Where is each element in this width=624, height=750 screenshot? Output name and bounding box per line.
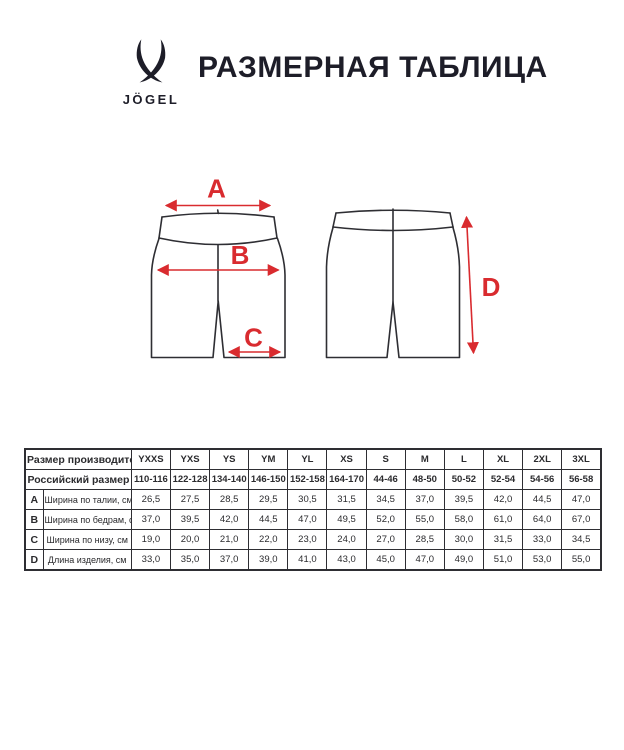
measure-label-c: C bbox=[244, 323, 263, 353]
measurement-value: 31,5 bbox=[483, 530, 522, 550]
measure-arrow-d bbox=[467, 217, 474, 353]
measurement-value: 31,5 bbox=[327, 490, 366, 510]
measurement-value: 20,0 bbox=[170, 530, 209, 550]
measurement-value: 33,0 bbox=[523, 530, 562, 550]
measurement-value: 55,0 bbox=[405, 510, 444, 530]
size-column-header: S bbox=[366, 449, 405, 470]
page-title: РАЗМЕРНАЯ ТАБЛИЦА bbox=[198, 52, 548, 84]
measure-label-d: D bbox=[482, 272, 501, 302]
size-column-header: 2XL bbox=[523, 449, 562, 470]
measurement-value: 24,0 bbox=[327, 530, 366, 550]
measurement-value: 37,0 bbox=[210, 550, 249, 571]
measurement-value: 58,0 bbox=[444, 510, 483, 530]
measurement-value: 34,5 bbox=[562, 530, 601, 550]
measurement-value: 23,0 bbox=[288, 530, 327, 550]
measurement-value: 34,5 bbox=[366, 490, 405, 510]
size-chart-page: JÖGEL РАЗМЕРНАЯ ТАБЛИЦА bbox=[0, 0, 624, 750]
russian-size-value: 164-170 bbox=[327, 470, 366, 490]
measurement-value: 30,0 bbox=[444, 530, 483, 550]
shorts-back-view bbox=[327, 209, 460, 358]
shorts-measurement-diagram: A B C D bbox=[0, 165, 624, 385]
measurement-letter: C bbox=[25, 530, 43, 550]
measurement-value: 49,0 bbox=[444, 550, 483, 571]
size-column-header: YS bbox=[210, 449, 249, 470]
size-column-header: XS bbox=[327, 449, 366, 470]
size-column-header: 3XL bbox=[562, 449, 601, 470]
measurement-value: 51,0 bbox=[483, 550, 522, 571]
measurement-value: 37,0 bbox=[131, 510, 170, 530]
measurement-value: 49,5 bbox=[327, 510, 366, 530]
measurement-value: 30,5 bbox=[288, 490, 327, 510]
measurement-value: 44,5 bbox=[249, 510, 288, 530]
brand-logo: JÖGEL bbox=[116, 38, 186, 107]
russian-size-value: 48-50 bbox=[405, 470, 444, 490]
russian-size-value: 134-140 bbox=[210, 470, 249, 490]
russian-size-value: 54-56 bbox=[523, 470, 562, 490]
measurement-value: 27,0 bbox=[366, 530, 405, 550]
measurement-value: 27,5 bbox=[170, 490, 209, 510]
manufacturer-size-label: Размер производителя bbox=[25, 449, 131, 470]
size-column-header: YXS bbox=[170, 449, 209, 470]
size-table-container: Размер производителяYXXSYXSYSYMYLXSSMLXL… bbox=[24, 448, 602, 571]
russian-size-value: 56-58 bbox=[562, 470, 601, 490]
measurement-label: Ширина по талии, см bbox=[43, 490, 131, 510]
size-column-header: YXXS bbox=[131, 449, 170, 470]
measurement-value: 52,0 bbox=[366, 510, 405, 530]
measure-label-b: B bbox=[231, 240, 250, 270]
measurement-value: 61,0 bbox=[483, 510, 522, 530]
jogel-antlers-icon bbox=[129, 38, 173, 90]
measurement-value: 44,5 bbox=[523, 490, 562, 510]
measurement-value: 39,0 bbox=[249, 550, 288, 571]
measurement-value: 39,5 bbox=[170, 510, 209, 530]
russian-size-value: 122-128 bbox=[170, 470, 209, 490]
russian-size-value: 110-116 bbox=[131, 470, 170, 490]
russian-size-label: Российский размер bbox=[25, 470, 131, 490]
measurement-value: 47,0 bbox=[288, 510, 327, 530]
measurement-label: Ширина по низу, см bbox=[43, 530, 131, 550]
measurement-value: 37,0 bbox=[405, 490, 444, 510]
measurement-row: BШирина по бедрам, см37,039,542,044,547,… bbox=[25, 510, 601, 530]
measurement-value: 33,0 bbox=[131, 550, 170, 571]
measurement-row: AШирина по талии, см26,527,528,529,530,5… bbox=[25, 490, 601, 510]
measurement-value: 21,0 bbox=[210, 530, 249, 550]
size-table: Размер производителяYXXSYXSYSYMYLXSSMLXL… bbox=[24, 448, 602, 571]
measurement-value: 47,0 bbox=[562, 490, 601, 510]
shorts-front-view bbox=[152, 210, 286, 358]
measurement-letter: B bbox=[25, 510, 43, 530]
measurement-value: 45,0 bbox=[366, 550, 405, 571]
measurement-value: 28,5 bbox=[405, 530, 444, 550]
measure-label-a: A bbox=[207, 174, 226, 204]
russian-size-value: 44-46 bbox=[366, 470, 405, 490]
size-column-header: L bbox=[444, 449, 483, 470]
manufacturer-size-row: Размер производителяYXXSYXSYSYMYLXSSMLXL… bbox=[25, 449, 601, 470]
brand-wordmark: JÖGEL bbox=[116, 92, 186, 107]
measurement-value: 41,0 bbox=[288, 550, 327, 571]
measurement-value: 64,0 bbox=[523, 510, 562, 530]
measurement-value: 42,0 bbox=[483, 490, 522, 510]
russian-size-value: 146-150 bbox=[249, 470, 288, 490]
measurement-value: 22,0 bbox=[249, 530, 288, 550]
size-column-header: YM bbox=[249, 449, 288, 470]
russian-size-value: 52-54 bbox=[483, 470, 522, 490]
size-table-body: Размер производителяYXXSYXSYSYMYLXSSMLXL… bbox=[25, 449, 601, 570]
measurement-label: Ширина по бедрам, см bbox=[43, 510, 131, 530]
measurement-value: 19,0 bbox=[131, 530, 170, 550]
size-column-header: XL bbox=[483, 449, 522, 470]
measurement-letter: A bbox=[25, 490, 43, 510]
measurement-letter: D bbox=[25, 550, 43, 571]
measurement-value: 28,5 bbox=[210, 490, 249, 510]
measurement-value: 53,0 bbox=[523, 550, 562, 571]
size-column-header: YL bbox=[288, 449, 327, 470]
measurement-value: 47,0 bbox=[405, 550, 444, 571]
measurement-row: CШирина по низу, см19,020,021,022,023,02… bbox=[25, 530, 601, 550]
measurement-value: 55,0 bbox=[562, 550, 601, 571]
measurement-label: Длина изделия, см bbox=[43, 550, 131, 571]
measurement-value: 35,0 bbox=[170, 550, 209, 571]
size-column-header: M bbox=[405, 449, 444, 470]
measurement-value: 39,5 bbox=[444, 490, 483, 510]
russian-size-value: 50-52 bbox=[444, 470, 483, 490]
measurement-value: 67,0 bbox=[562, 510, 601, 530]
measurement-value: 42,0 bbox=[210, 510, 249, 530]
measurement-value: 43,0 bbox=[327, 550, 366, 571]
russian-size-row: Российский размер110-116122-128134-14014… bbox=[25, 470, 601, 490]
measurement-row: DДлина изделия, см33,035,037,039,041,043… bbox=[25, 550, 601, 571]
russian-size-value: 152-158 bbox=[288, 470, 327, 490]
measurement-value: 26,5 bbox=[131, 490, 170, 510]
measurement-value: 29,5 bbox=[249, 490, 288, 510]
